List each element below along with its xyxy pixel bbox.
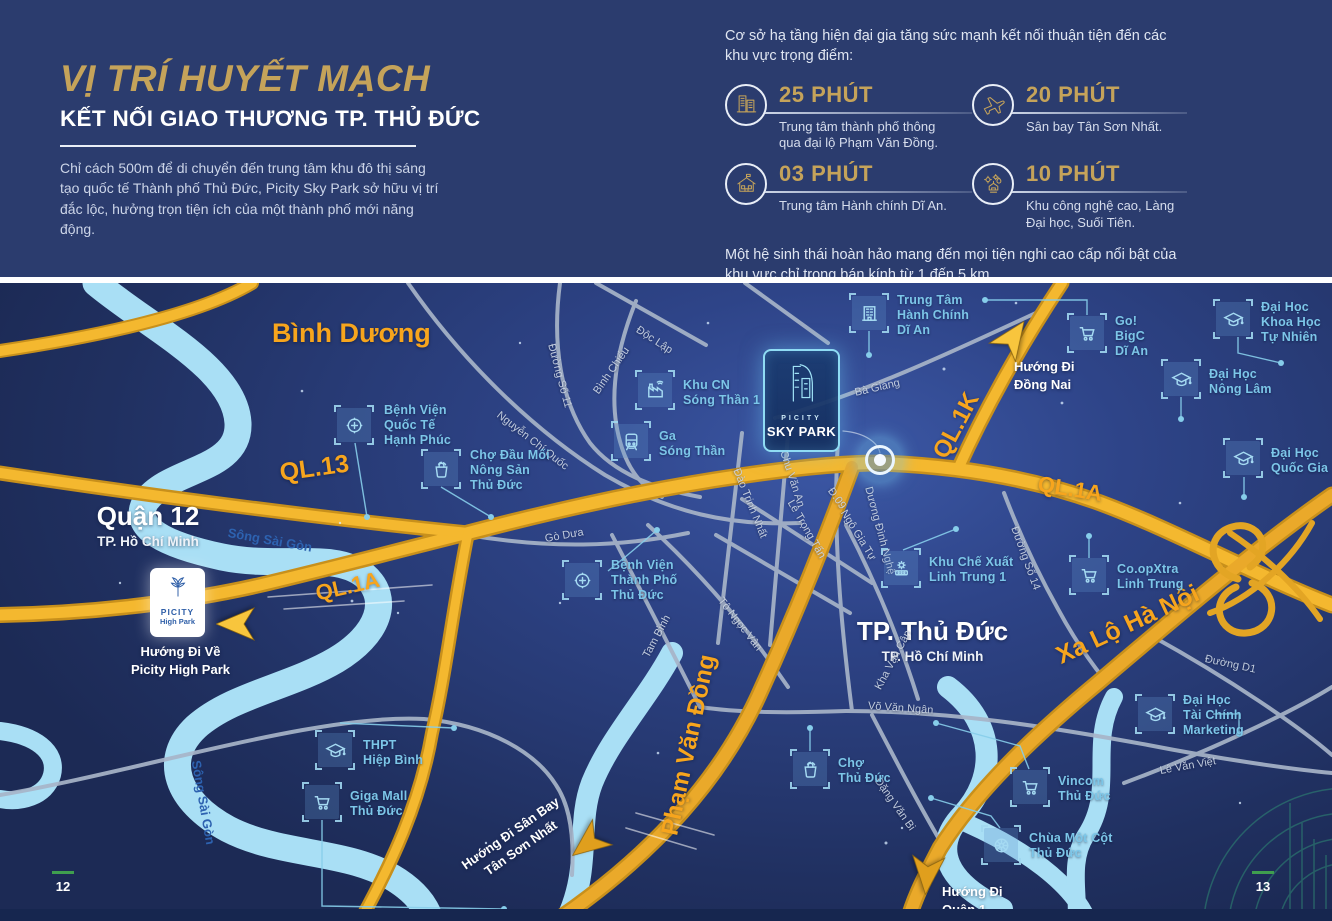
street-label: Lê Văn Việt bbox=[1159, 755, 1217, 777]
travel-stat: 20 PHÚTSân bay Tân Sơn Nhất. bbox=[972, 82, 1187, 153]
direction-label: Hướng Đi Đồng Nai bbox=[1014, 358, 1124, 393]
location-description: Chỉ cách 500m để di chuyển đến trung tâm… bbox=[60, 158, 440, 239]
marker-dot bbox=[874, 454, 886, 466]
direction-label: Hướng Đi Về Picity High Park bbox=[118, 643, 243, 678]
page-title: VỊ TRÍ HUYẾT MẠCH bbox=[60, 58, 440, 100]
page-number: 13 bbox=[1256, 879, 1270, 894]
poi-label: Chợ Thủ Đức bbox=[838, 756, 891, 786]
sky-park-building-icon bbox=[783, 357, 821, 412]
poi-label: Chùa Một Cột Thủ Đức bbox=[1029, 831, 1113, 861]
street-label: Bình Chiểu bbox=[591, 345, 632, 396]
street-label: Võ Văn Ngân bbox=[868, 700, 934, 717]
page-marker-line bbox=[52, 871, 74, 874]
header-left: VỊ TRÍ HUYẾT MẠCH KẾT NỐI GIAO THƯƠNG TP… bbox=[60, 0, 440, 277]
region-label: Quận 12TP. Hồ Chí Minh bbox=[83, 503, 213, 549]
header-right: Cơ sở hạ tầng hiện đại gia tăng sức mạnh… bbox=[725, 0, 1187, 277]
factory-icon bbox=[638, 373, 672, 407]
region-subtitle: TP. Hồ Chí Minh bbox=[83, 534, 213, 549]
admin-house-icon bbox=[725, 163, 767, 205]
high-park-tree-icon bbox=[165, 573, 191, 606]
poi-label: Giga Mall Thủ Đức bbox=[350, 789, 407, 819]
travel-stat-description: Khu công nghệ cao, Làng Đại học, Suối Ti… bbox=[1026, 198, 1187, 232]
poi-label: Đại Học Nông Lâm bbox=[1209, 367, 1272, 397]
hi-tech-icon bbox=[972, 163, 1014, 205]
cart-icon bbox=[1072, 558, 1106, 592]
poi-label: Khu Chế Xuất Linh Trung 1 bbox=[929, 555, 1013, 585]
university-icon bbox=[1226, 441, 1260, 475]
travel-stat-body: 20 PHÚTSân bay Tân Sơn Nhất. bbox=[1026, 82, 1187, 153]
poi-label: Bệnh Viện Quốc Tế Hạnh Phúc bbox=[384, 403, 451, 447]
high-park-brand: PICITY bbox=[161, 607, 194, 617]
stat-underline bbox=[1012, 112, 1187, 114]
admin-icon bbox=[852, 296, 886, 330]
travel-stat-description: Trung tâm thành phố thông qua đại lộ Phạ… bbox=[779, 119, 957, 153]
high-park-name: High Park bbox=[160, 617, 195, 626]
poi-label: Trung Tâm Hành Chính Dĩ An bbox=[897, 293, 969, 337]
sky-park-location-marker bbox=[857, 437, 903, 483]
city-buildings-icon bbox=[725, 84, 767, 126]
street-label: Đường Số 11 bbox=[545, 342, 574, 409]
poi-label: Chợ Đầu Mối Nông Sản Thủ Đức bbox=[470, 448, 550, 492]
river-label: Sông Sài Gòn bbox=[227, 525, 314, 555]
hospital-icon bbox=[337, 408, 371, 442]
bottom-edge-strip bbox=[0, 909, 1332, 921]
cart-icon bbox=[1013, 770, 1047, 804]
market-icon bbox=[793, 752, 827, 786]
train-icon bbox=[614, 424, 648, 458]
region-name: TP. Thủ Đức bbox=[855, 618, 1010, 645]
travel-time-stats: 25 PHÚTTrung tâm thành phố thông qua đại… bbox=[725, 82, 1187, 233]
page-marker-line bbox=[1252, 871, 1274, 874]
travel-time-value: 10 PHÚT bbox=[1026, 161, 1187, 187]
poi-label: THPT Hiệp Bình bbox=[363, 738, 423, 768]
university-icon bbox=[1164, 362, 1198, 396]
airplane-icon bbox=[972, 84, 1014, 126]
street-label: Đ.09 bbox=[825, 486, 848, 512]
university-icon bbox=[1138, 697, 1172, 731]
travel-stat-body: 25 PHÚTTrung tâm thành phố thông qua đại… bbox=[779, 82, 972, 153]
travel-stat-body: 10 PHÚTKhu công nghệ cao, Làng Đại học, … bbox=[1026, 161, 1187, 232]
travel-time-value: 03 PHÚT bbox=[779, 161, 972, 187]
hospital-icon bbox=[565, 563, 599, 597]
stat-underline bbox=[765, 191, 972, 193]
poi-label: Đại Học Quốc Gia bbox=[1271, 446, 1328, 476]
region-name: Bình Dương bbox=[272, 319, 472, 347]
page-number: 12 bbox=[56, 879, 70, 894]
poi-label: Ga Sóng Thần bbox=[659, 429, 725, 459]
picity-high-park-badge: PICITY High Park bbox=[150, 568, 205, 637]
poi-label: Bệnh Viện Thành Phố Thủ Đức bbox=[611, 558, 677, 602]
street-label: Độc Lập bbox=[634, 324, 675, 356]
poi-label: Đại Học Tài Chính Marketing bbox=[1183, 693, 1244, 737]
market-icon bbox=[424, 452, 458, 486]
page-number-right: 13 bbox=[1246, 871, 1280, 896]
pagoda-icon bbox=[984, 828, 1018, 862]
university-icon bbox=[318, 733, 352, 767]
factory2-icon bbox=[884, 551, 918, 585]
title-divider bbox=[60, 145, 416, 147]
street-label: Đường D1 bbox=[1204, 653, 1257, 676]
travel-stat-body: 03 PHÚTTrung tâm Hành chính Dĩ An. bbox=[779, 161, 972, 232]
location-map: Bình DươngQuận 12TP. Hồ Chí MinhTP. Thủ … bbox=[0, 283, 1332, 921]
poi-label: Co.opXtra Linh Trung bbox=[1117, 562, 1184, 592]
stat-underline bbox=[765, 112, 972, 114]
header: VỊ TRÍ HUYẾT MẠCH KẾT NỐI GIAO THƯƠNG TP… bbox=[0, 0, 1332, 277]
picity-sky-park-badge: PICITY SKY PARK bbox=[763, 349, 840, 452]
page-subtitle: KẾT NỐI GIAO THƯƠNG TP. THỦ ĐỨC bbox=[60, 106, 440, 132]
travel-time-value: 25 PHÚT bbox=[779, 82, 972, 108]
arrow-high-park bbox=[216, 601, 262, 642]
region-label: TP. Thủ ĐứcTP. Hồ Chí Minh bbox=[855, 618, 1010, 664]
street-label: Tô Ngọc Vân bbox=[715, 595, 764, 653]
street-label: Đào Trinh Nhất bbox=[730, 467, 769, 540]
sky-park-brand: PICITY bbox=[781, 415, 822, 422]
arrow-quan-1 bbox=[903, 847, 948, 896]
poi-label: Đại Học Khoa Học Tự Nhiên bbox=[1261, 300, 1321, 344]
poi-label: Khu CN Sóng Thần 1 bbox=[683, 378, 760, 408]
highway-label: QL.1K bbox=[928, 388, 986, 464]
cart-icon bbox=[305, 785, 339, 819]
travel-stat-description: Sân bay Tân Sơn Nhất. bbox=[1026, 119, 1187, 136]
poi-label: Go! BigC Dĩ An bbox=[1115, 314, 1148, 358]
street-label: Gò Dưa bbox=[544, 526, 585, 545]
region-name: Quận 12 bbox=[83, 503, 213, 530]
region-subtitle: TP. Hồ Chí Minh bbox=[855, 649, 1010, 664]
street-label: Tam Bình bbox=[641, 613, 673, 660]
poi-label: Vincom Thủ Đức bbox=[1058, 774, 1111, 804]
travel-stat: 03 PHÚTTrung tâm Hành chính Dĩ An. bbox=[725, 161, 972, 232]
street-label: Đường Số 14 bbox=[1008, 525, 1042, 592]
street-label: Bà Giang bbox=[854, 377, 901, 399]
highway-label: QL.13 bbox=[278, 449, 351, 487]
infrastructure-intro: Cơ sở hạ tầng hiện đại gia tăng sức mạnh… bbox=[725, 26, 1187, 67]
cart-icon bbox=[1070, 316, 1104, 350]
highway-label: QL.1A bbox=[1036, 471, 1104, 507]
street-label: Lê Trọng Tấn bbox=[785, 498, 828, 560]
travel-stat: 25 PHÚTTrung tâm thành phố thông qua đại… bbox=[725, 82, 972, 153]
university-icon bbox=[1216, 302, 1250, 336]
sky-park-name: SKY PARK bbox=[767, 424, 836, 439]
highway-label: QL.1A bbox=[313, 567, 382, 607]
page-number-left: 12 bbox=[46, 871, 80, 896]
stat-underline bbox=[1012, 191, 1187, 193]
travel-time-value: 20 PHÚT bbox=[1026, 82, 1187, 108]
travel-stat: 10 PHÚTKhu công nghệ cao, Làng Đại học, … bbox=[972, 161, 1187, 232]
travel-stat-description: Trung tâm Hành chính Dĩ An. bbox=[779, 198, 957, 215]
brochure-page: VỊ TRÍ HUYẾT MẠCH KẾT NỐI GIAO THƯƠNG TP… bbox=[0, 0, 1332, 921]
highway-label: Phạm Văn Đồng bbox=[656, 652, 722, 838]
river-label: Sông Sài Gòn bbox=[189, 759, 219, 846]
region-label: Bình Dương bbox=[272, 319, 472, 347]
